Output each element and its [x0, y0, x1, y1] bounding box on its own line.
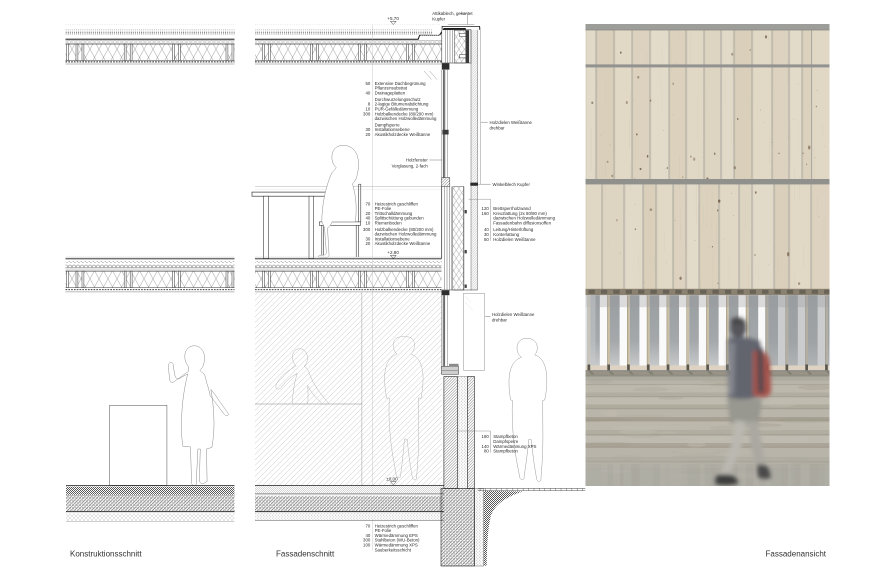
svg-text:+5,70: +5,70 — [387, 16, 399, 21]
svg-text:±0,00: ±0,00 — [386, 476, 398, 481]
svg-text:70: 70 — [365, 523, 370, 528]
svg-text:Drainageplatten: Drainageplatten — [375, 91, 406, 96]
svg-text:Fassadenbahn diffusionsoffen: Fassadenbahn diffusionsoffen — [493, 221, 551, 226]
svg-text:20: 20 — [365, 132, 370, 137]
svg-text:20: 20 — [365, 241, 370, 246]
svg-text:Akustikholzdecke Weißtanne: Akustikholzdecke Weißtanne — [375, 241, 431, 246]
svg-text:dazwischen Holzwolledämmung: dazwischen Holzwolledämmung — [375, 116, 437, 121]
svg-text:drehbar: drehbar — [490, 126, 506, 131]
svg-text:Konstruktionsschnitt: Konstruktionsschnitt — [70, 550, 142, 559]
svg-text:80: 80 — [484, 449, 489, 454]
svg-text:Riemenboden: Riemenboden — [375, 221, 403, 226]
svg-text:100: 100 — [363, 543, 371, 548]
svg-text:Sauberkeitsschicht: Sauberkeitsschicht — [375, 547, 412, 552]
svg-text:50: 50 — [484, 237, 489, 242]
svg-text:Fassadenansicht: Fassadenansicht — [766, 550, 827, 559]
svg-text:Holzdielen Weißtanne: Holzdielen Weißtanne — [493, 237, 536, 242]
svg-text:Kupfer: Kupfer — [432, 17, 445, 22]
svg-text:180: 180 — [482, 434, 490, 439]
svg-text:40: 40 — [365, 91, 370, 96]
svg-text:10: 10 — [365, 221, 370, 226]
svg-text:Stampfbeton: Stampfbeton — [493, 449, 518, 454]
svg-text:Holzdielen Weißtanne: Holzdielen Weißtanne — [490, 120, 533, 125]
svg-text:Winkelblech Kupfer: Winkelblech Kupfer — [493, 182, 531, 187]
svg-text:Holzdielen Weißtanne: Holzdielen Weißtanne — [492, 312, 535, 317]
svg-text:drehbar: drehbar — [492, 318, 508, 323]
svg-text:160: 160 — [482, 211, 490, 216]
svg-text:Fassadenschnitt: Fassadenschnitt — [276, 550, 335, 559]
svg-text:Verglasung, 2-fach: Verglasung, 2-fach — [392, 163, 429, 168]
svg-text:50: 50 — [365, 81, 370, 86]
svg-text:300: 300 — [363, 111, 371, 116]
svg-text:+2,80: +2,80 — [387, 250, 399, 255]
svg-text:Holzfenster: Holzfenster — [406, 158, 429, 163]
svg-text:70: 70 — [365, 201, 370, 206]
svg-text:Akustikholzdecke Weißtanne: Akustikholzdecke Weißtanne — [375, 132, 431, 137]
svg-text:300: 300 — [363, 227, 371, 232]
